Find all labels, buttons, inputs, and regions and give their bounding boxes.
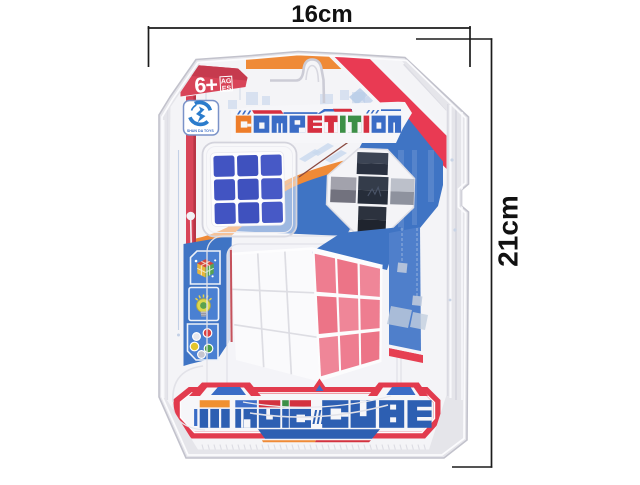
svg-text:SHUN DA TOYS: SHUN DA TOYS bbox=[187, 129, 215, 133]
svg-text:AG: AG bbox=[221, 78, 232, 86]
svg-text:6+: 6+ bbox=[194, 73, 218, 98]
svg-text:21cm: 21cm bbox=[493, 195, 524, 267]
svg-text:16cm: 16cm bbox=[291, 1, 352, 28]
svg-text:ES: ES bbox=[222, 85, 232, 92]
